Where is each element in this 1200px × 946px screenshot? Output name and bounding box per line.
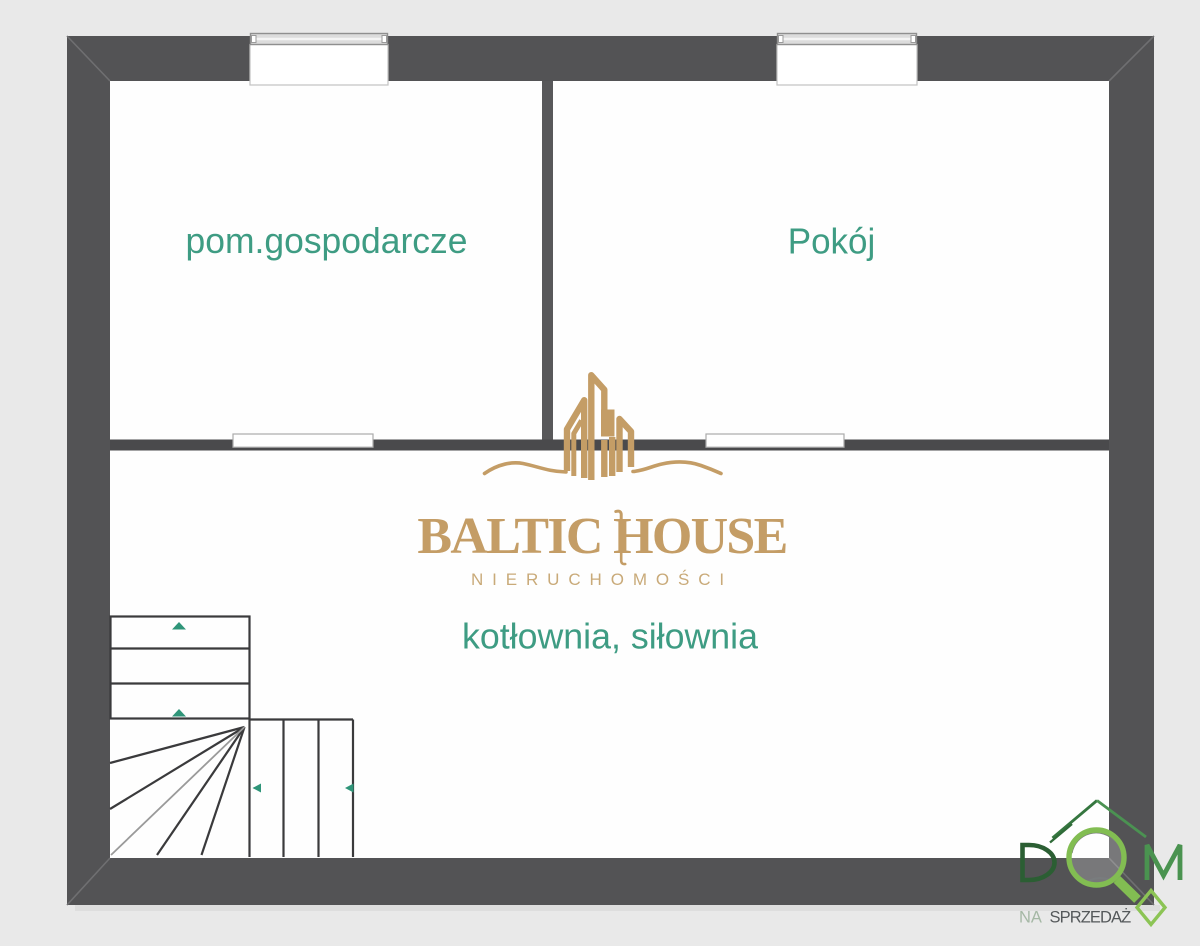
svg-text:kotłownia, siłownia: kotłownia, siłownia <box>462 616 759 657</box>
svg-text:BALTIC HOUSE: BALTIC HOUSE <box>417 508 786 565</box>
svg-text:NA: NA <box>1019 909 1042 927</box>
svg-text:pom.gospodarcze: pom.gospodarcze <box>186 220 468 261</box>
svg-text:Pokój: Pokój <box>788 220 876 261</box>
svg-text:NIERUCHOMOŚCI: NIERUCHOMOŚCI <box>471 570 733 589</box>
svg-text:SPRZEDAŻ: SPRZEDAŻ <box>1050 908 1132 927</box>
